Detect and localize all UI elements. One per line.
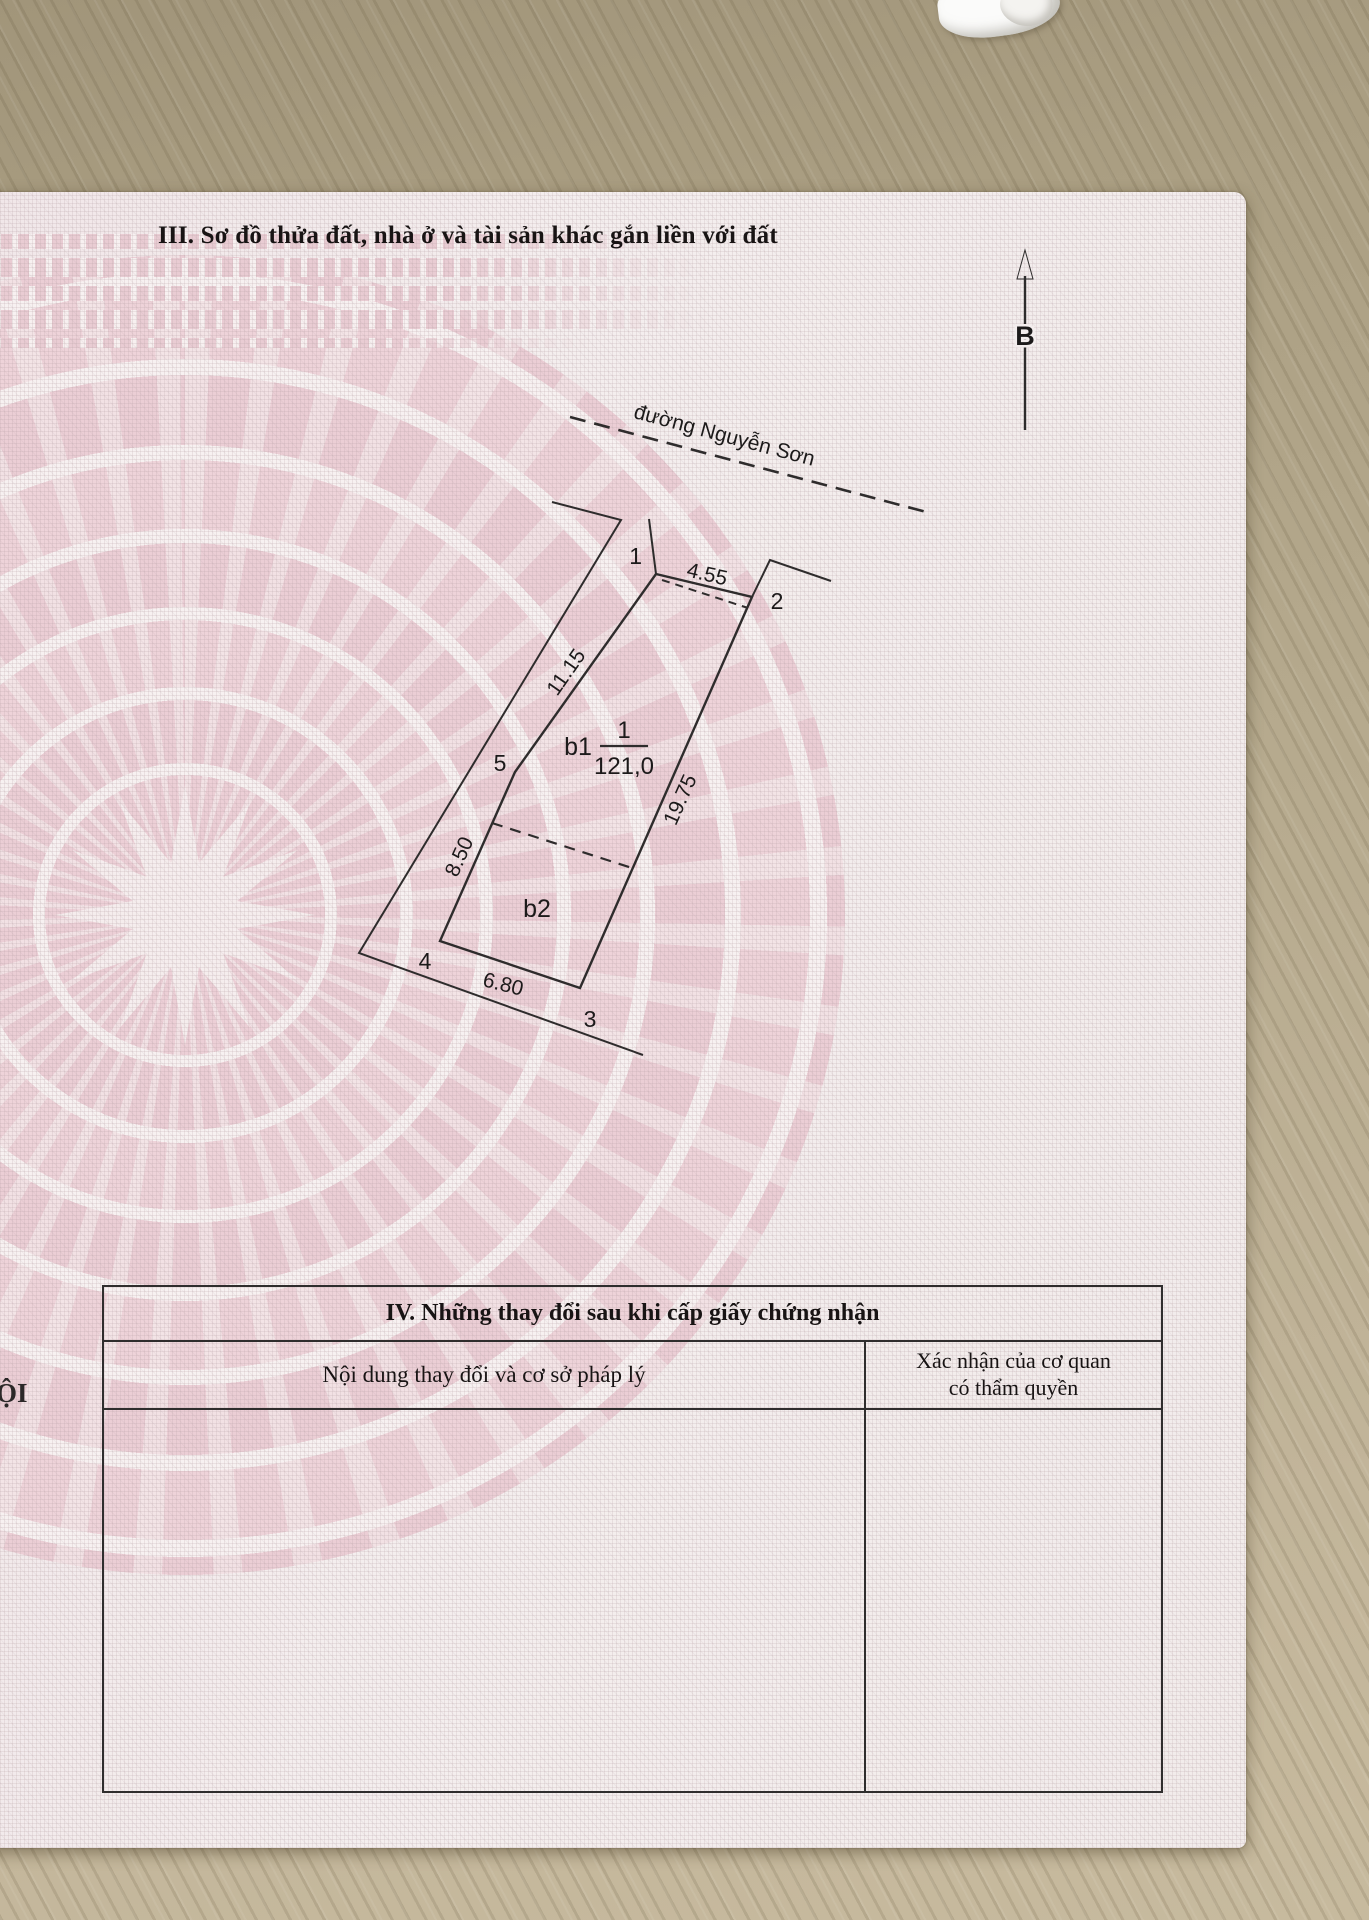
col-header-confirmation-line1: Xác nhận của cơ quan: [916, 1348, 1111, 1375]
col-header-confirmation-line2: có thẩm quyền: [949, 1375, 1079, 1402]
neighbor-boundary-right: [752, 560, 831, 597]
edge-length-3-4: 6.80: [481, 968, 526, 1000]
vertex-label-2: 2: [771, 588, 784, 614]
col-header-content: Nội dung thay đổi và cơ sở pháp lý: [104, 1342, 866, 1410]
col-header-confirmation: Xác nhận của cơ quan có thẩm quyền: [866, 1342, 1161, 1410]
vertex-label-4: 4: [419, 948, 432, 974]
spine-margin-text: ỘI: [0, 1378, 28, 1409]
subarea-label-b1: b1: [564, 733, 592, 761]
subarea-label-b2: b2: [523, 895, 551, 923]
parcel-boundary: [440, 574, 752, 988]
parcel-number: 1: [617, 717, 630, 744]
changes-table: IV. Những thay đổi sau khi cấp giấy chứn…: [102, 1285, 1163, 1793]
changes-body-left-cell: [104, 1410, 866, 1791]
parcel-area: 121,0: [594, 753, 654, 780]
vertex-label-3: 3: [584, 1006, 597, 1032]
changes-body-right-cell: [866, 1410, 1161, 1791]
photo-canvas: III. Sơ đồ thửa đất, nhà ở và tài sản kh…: [0, 0, 1369, 1920]
frontage-stub-line: [649, 519, 656, 574]
subdivision-divider-line: [492, 823, 632, 868]
street-label: đường Nguyễn Sơn: [631, 400, 817, 470]
section4-title: IV. Những thay đổi sau khi cấp giấy chứn…: [104, 1287, 1161, 1342]
vertex-label-5: 5: [494, 750, 507, 776]
north-label: B: [1015, 321, 1035, 351]
edge-length-1-2: 4.55: [685, 559, 730, 591]
edge-length-5-1: 11.15: [542, 645, 590, 700]
edge-length-4-5: 8.50: [441, 833, 479, 880]
vertex-label-1: 1: [629, 543, 642, 569]
certificate-paper: III. Sơ đồ thửa đất, nhà ở và tài sản kh…: [0, 192, 1246, 1848]
edge-length-2-3: 19.75: [659, 771, 701, 828]
